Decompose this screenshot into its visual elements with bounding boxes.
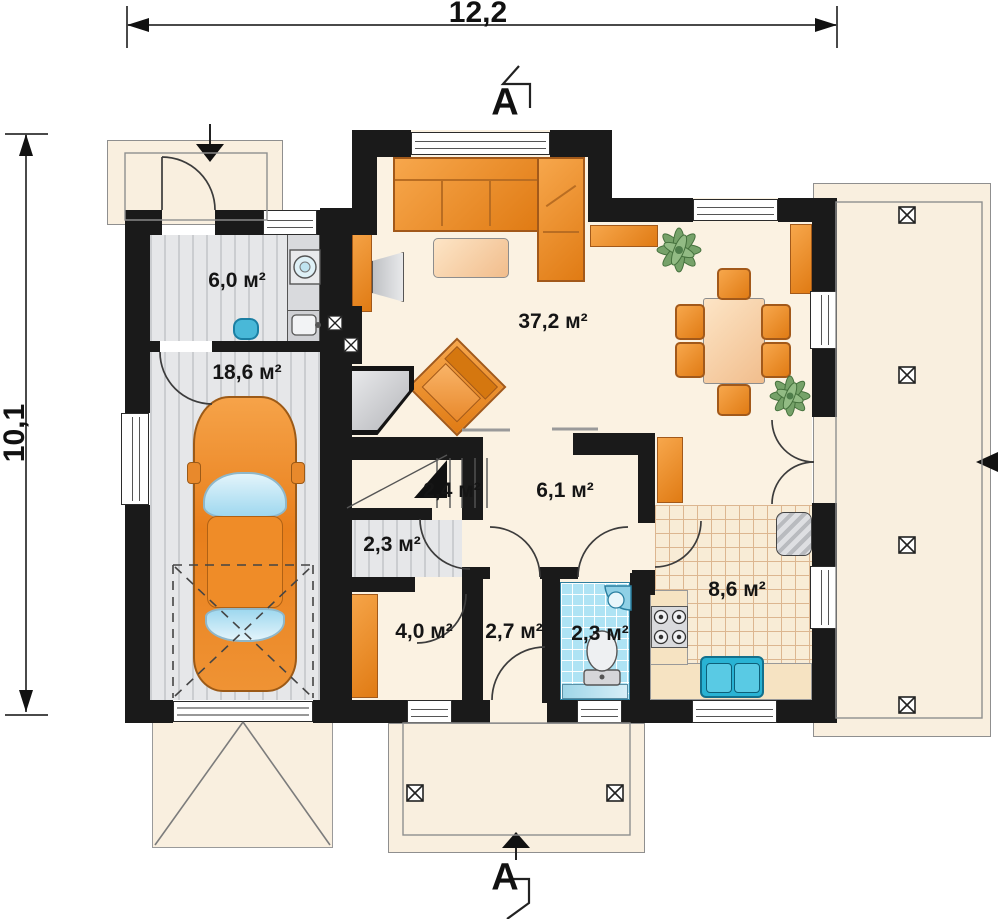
room-label-landing: 2,3 м² (363, 533, 421, 557)
garage-door (173, 701, 313, 722)
window-storage-bottom (407, 700, 452, 723)
room-label-storage: 4,0 м² (395, 620, 453, 644)
room-label-kitchen: 8,6 м² (708, 578, 766, 602)
dining-chair-n (717, 268, 751, 300)
car-windshield (203, 472, 287, 518)
window-bath-bottom (577, 700, 622, 723)
wall-segment (215, 210, 263, 235)
wall-segment (150, 341, 160, 352)
room-label-living: 37,2 м² (518, 310, 587, 334)
sideboard-top (590, 225, 658, 247)
floor-plan-canvas: 12,2 10,1 A A 6,0 м² 18,6 м² 37,2 м² 2,4… (0, 0, 1000, 919)
room-label-utility: 6,0 м² (208, 269, 266, 293)
wall-segment (320, 306, 362, 364)
wall-segment (125, 505, 150, 723)
window-living-top (411, 132, 550, 155)
dimension-height-label: 10,1 (0, 404, 32, 462)
wall-segment (622, 700, 692, 723)
wall-segment (462, 577, 483, 703)
cabinet-right-wall (790, 224, 812, 294)
wall-segment (542, 573, 560, 703)
terrace (813, 183, 991, 737)
section-marker-top: A (491, 82, 518, 125)
sofa-horizontal (393, 157, 539, 232)
fridge (776, 512, 812, 556)
window-dining-top (693, 199, 778, 221)
wall-segment (452, 700, 490, 723)
exterior-notch (600, 120, 812, 198)
driveway (152, 721, 333, 848)
wall-segment (812, 349, 837, 417)
stove (651, 606, 688, 648)
wall-segment (588, 130, 612, 222)
wall-segment (125, 210, 162, 235)
window-kitchen-bottom (692, 700, 777, 723)
wall-segment (812, 198, 837, 291)
cabinet-hall (657, 437, 683, 503)
sofa-seam (441, 179, 443, 226)
car-roof (207, 516, 283, 608)
bath-vanity (562, 684, 628, 699)
car-mirror-right (291, 462, 305, 484)
dining-chair-s (717, 384, 751, 416)
dimension-width-label: 12,2 (449, 0, 507, 30)
room-label-garage: 18,6 м² (212, 361, 281, 385)
wall-segment (125, 210, 150, 413)
dining-table (703, 298, 765, 384)
dining-chair-e1 (761, 304, 791, 340)
dining-chair-w1 (675, 304, 705, 340)
wall-segment (540, 567, 578, 579)
wall-segment (320, 577, 415, 592)
wall-segment (320, 210, 352, 723)
wall-segment (462, 567, 490, 579)
room-label-hall: 6,1 м² (536, 479, 594, 503)
sofa-seam (489, 179, 491, 226)
wall-segment (340, 437, 480, 460)
section-marker-bottom: A (491, 857, 518, 900)
room-label-vestibule: 2,7 м² (485, 620, 543, 644)
wall-segment (630, 573, 650, 703)
utility-counter (287, 228, 320, 314)
sofa-seam (546, 185, 577, 207)
window-garage-left (121, 413, 149, 505)
dining-chair-w2 (675, 342, 705, 378)
wall-segment (320, 700, 407, 723)
wall-segment (547, 700, 577, 723)
window-right-upper (810, 291, 837, 349)
wall-segment (777, 700, 837, 723)
window-right-lower (810, 566, 837, 629)
car-mirror-left (187, 462, 201, 484)
wall-segment (340, 508, 432, 520)
car (191, 396, 299, 692)
entry-porch-bottom (388, 723, 645, 853)
wall-segment (125, 700, 173, 723)
sofa-corner (537, 157, 585, 282)
wall-segment (638, 433, 655, 523)
sofa-seam (395, 179, 537, 181)
room-label-bathroom: 2,3 м² (571, 622, 629, 646)
sink-basin-left (706, 663, 732, 693)
wall-segment (612, 198, 693, 222)
floor-drain (233, 318, 259, 340)
coffee-table (433, 238, 509, 278)
utility-sink (287, 310, 320, 342)
sink-basin-right (734, 663, 760, 693)
wall-segment (352, 130, 411, 157)
wall-segment (812, 503, 837, 566)
dining-chair-e2 (761, 342, 791, 378)
room-label-stairs: 2,4 м² (423, 479, 481, 503)
wall-segment (320, 208, 377, 235)
window-utility-top (263, 210, 317, 235)
sofa-seam (543, 231, 579, 233)
kitchen-sink (700, 656, 764, 698)
